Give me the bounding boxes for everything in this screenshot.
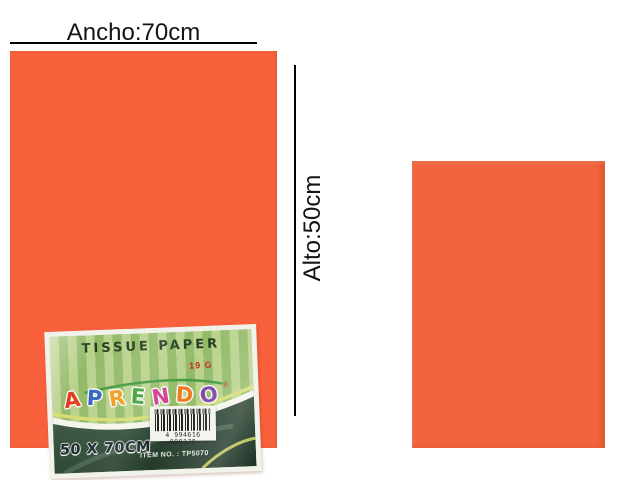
label-striped-background: TISSUE PAPER 19 G A P R E N D O ® 4 9946… — [49, 329, 256, 474]
barcode: 4 994616 980178 — [150, 405, 216, 441]
brand-letter: P — [86, 388, 103, 410]
height-dimension-label: Alto:50cm — [299, 175, 327, 282]
small-tissue-sheet — [412, 161, 605, 448]
weight-text: 19 G — [189, 360, 213, 371]
registered-trademark-icon: ® — [222, 380, 228, 389]
brand-letter: E — [130, 386, 146, 408]
height-dimension-line — [294, 65, 296, 416]
width-dimension-line — [10, 42, 257, 44]
barcode-digits: 4 994616 980178 — [150, 431, 216, 445]
product-image-canvas: Ancho:70cm Alto:50cm — [0, 0, 640, 480]
large-tissue-sheet: TISSUE PAPER 19 G A P R E N D O ® 4 9946… — [10, 51, 277, 448]
brand-letter: O — [198, 384, 219, 408]
barcode-bars — [155, 409, 211, 432]
brand-letter: D — [175, 384, 194, 406]
brand-letter: A — [62, 389, 81, 412]
package-label: TISSUE PAPER 19 G A P R E N D O ® 4 9946… — [44, 324, 261, 479]
brand-letter: R — [107, 387, 126, 410]
